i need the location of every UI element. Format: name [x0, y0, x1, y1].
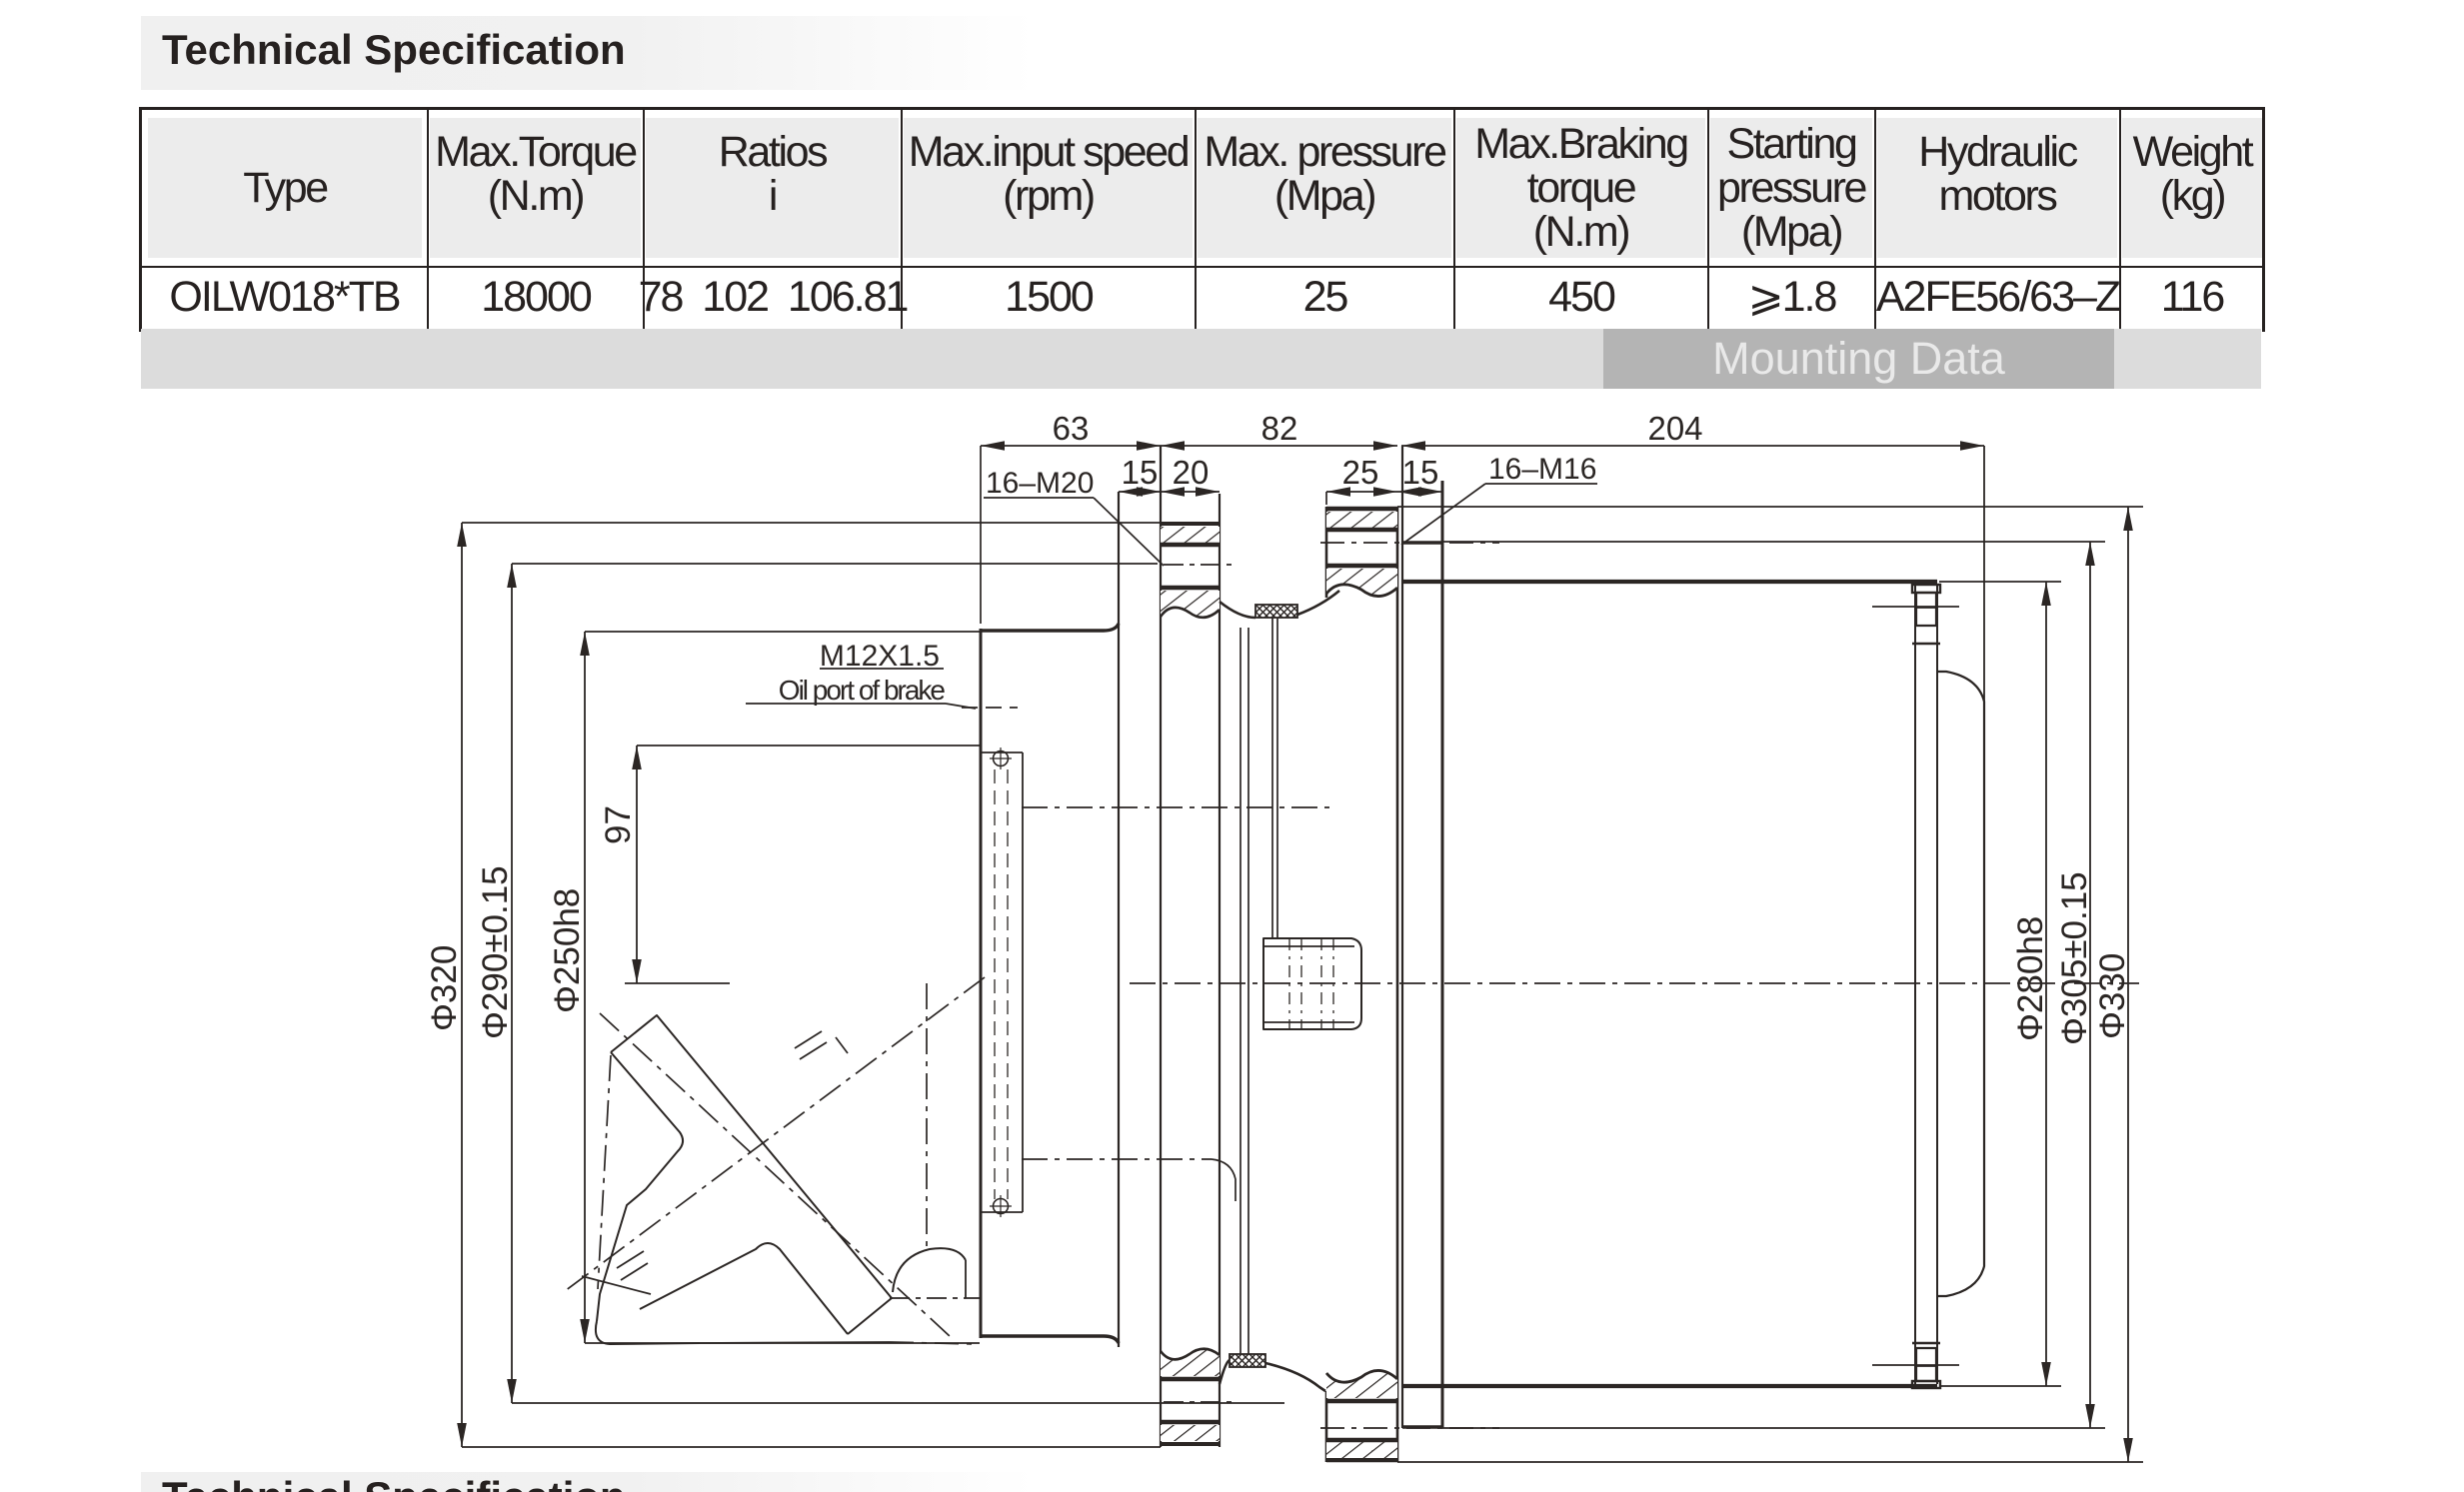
svg-text:Oil port of brake: Oil port of brake: [779, 675, 946, 706]
svg-text:16–M16: 16–M16: [1488, 453, 1596, 486]
svg-text:Φ305±0.15: Φ305±0.15: [2055, 871, 2094, 1045]
svg-text:Φ290±0.15: Φ290±0.15: [476, 865, 515, 1039]
svg-text:97: 97: [599, 805, 638, 844]
svg-text:15: 15: [1402, 454, 1439, 491]
svg-text:16–M20: 16–M20: [986, 467, 1094, 500]
svg-text:Φ330: Φ330: [2093, 953, 2132, 1039]
svg-text:Φ280h8: Φ280h8: [2011, 916, 2050, 1041]
svg-text:15: 15: [1122, 454, 1159, 491]
svg-text:20: 20: [1173, 454, 1210, 491]
svg-text:63: 63: [1053, 410, 1090, 447]
svg-text:Φ250h8: Φ250h8: [548, 888, 587, 1013]
svg-text:204: 204: [1647, 410, 1702, 447]
svg-text:Φ320: Φ320: [425, 945, 464, 1031]
svg-text:25: 25: [1342, 454, 1379, 491]
svg-text:82: 82: [1261, 410, 1298, 447]
svg-text:M12X1.5: M12X1.5: [820, 640, 940, 673]
